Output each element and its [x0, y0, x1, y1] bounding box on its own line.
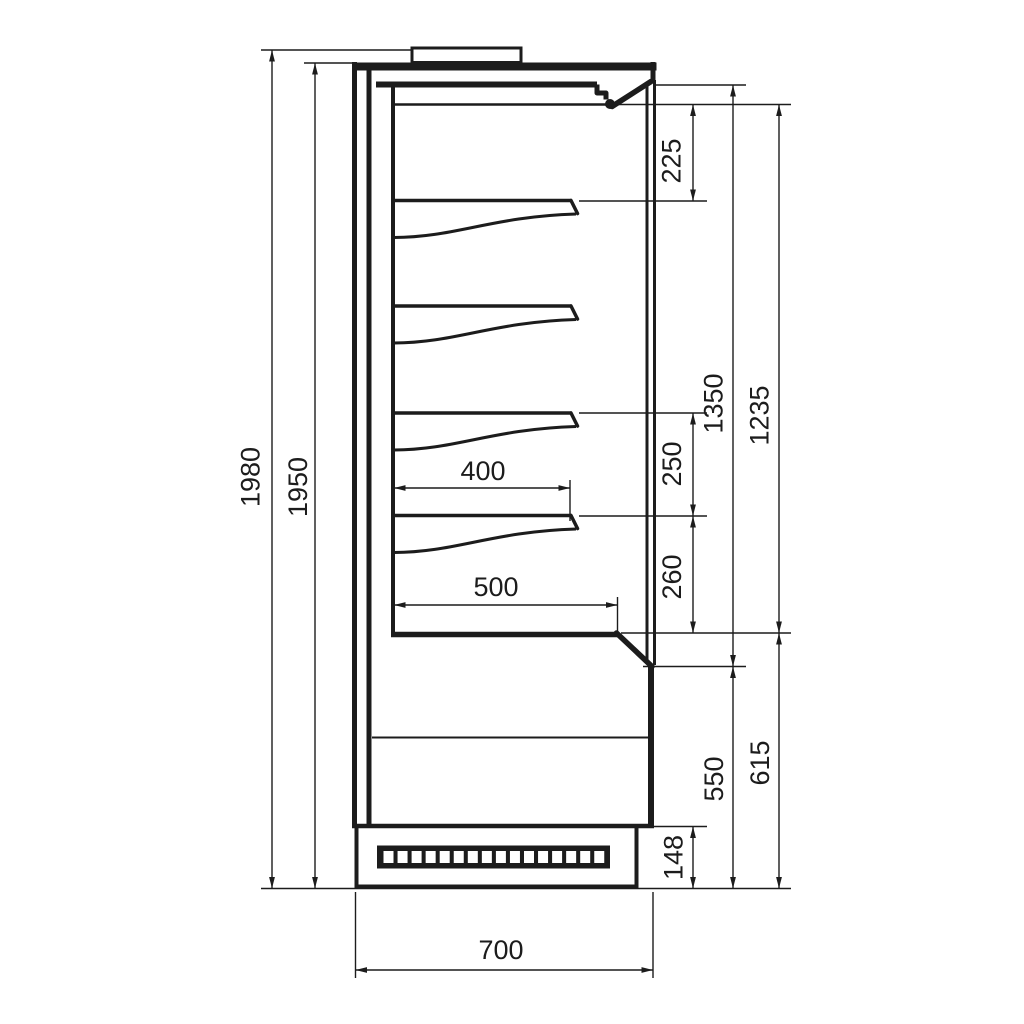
shelf-4-underside-curve — [394, 529, 576, 553]
dim-overall-depth-arrow-right — [642, 967, 654, 973]
dim-opening-height-arrow-bottom — [730, 655, 736, 667]
dim-top-clearance-arrow-bottom — [690, 190, 696, 202]
dim-shelf-pitch-upper-arrow-bottom — [690, 505, 696, 517]
dim-overall-height-arrow-top — [269, 50, 275, 62]
dim-label-shelf-pitch-upper: 250 — [657, 441, 687, 486]
dim-shelf-depth-arrow-left — [394, 485, 406, 491]
shelf-3-underside-curve — [394, 427, 576, 451]
dim-body-height-arrow-top — [312, 63, 318, 75]
dim-deck-depth-arrow-right — [606, 602, 618, 608]
grille-slot — [440, 851, 450, 863]
canopy-front-bevel — [612, 82, 651, 107]
dim-label-shelf-depth: 400 — [460, 456, 505, 486]
grille-slot — [580, 851, 590, 863]
grille-slot — [468, 851, 478, 863]
shelf-1-underside-curve — [394, 214, 576, 238]
shelf-4-front-tick — [571, 516, 578, 529]
dim-top-clearance-arrow-top — [690, 105, 696, 117]
drawing-sheet: 1980 1950 225 250 260 148 1350 550 1235 … — [0, 0, 1024, 1024]
dim-shelf-pitch-lower-arrow-bottom — [690, 622, 696, 634]
dim-label-deck-depth: 500 — [473, 572, 518, 602]
grille-slot — [412, 851, 422, 863]
canopy-profile-step — [597, 85, 606, 100]
dim-label-deck-height: 615 — [745, 740, 775, 785]
shelf-3-front-tick — [571, 413, 578, 426]
grille-slot — [454, 851, 464, 863]
dim-plinth-height-arrow-bottom — [690, 877, 696, 889]
grille-slot — [496, 851, 506, 863]
top-box — [412, 48, 521, 63]
dim-overall-depth-arrow-left — [356, 967, 368, 973]
dim-label-plinth-height: 148 — [659, 835, 689, 880]
dim-shelf-pitch-upper-arrow-top — [690, 413, 696, 425]
dim-shelf-depth-arrow-right — [559, 485, 571, 491]
grille-slot — [482, 851, 492, 863]
shelf-2-front-tick — [571, 306, 578, 319]
dim-opening-height-arrow-top — [730, 85, 736, 97]
grille-slot — [398, 851, 408, 863]
grille-slot — [552, 851, 562, 863]
grille-slot — [384, 851, 394, 863]
dim-label-opening-height: 1350 — [699, 373, 729, 433]
dim-label-overall-height: 1980 — [236, 447, 266, 507]
dim-deck-depth-arrow-left — [394, 602, 406, 608]
dim-label-base-front-height: 550 — [699, 756, 729, 801]
dim-label-top-clearance: 225 — [657, 138, 687, 183]
grille-slot — [524, 851, 534, 863]
dim-shelf-pitch-lower-arrow-top — [690, 516, 696, 528]
grille-slot — [426, 851, 436, 863]
dim-display-height-arrow-bottom — [776, 622, 782, 634]
dim-deck-height-arrow-bottom — [776, 877, 782, 889]
grille-slot — [538, 851, 548, 863]
dim-display-height-arrow-top — [776, 105, 782, 117]
shelf-1-front-tick — [571, 201, 578, 214]
dimension-labels: 1980 1950 225 250 260 148 1350 550 1235 … — [236, 138, 776, 965]
dim-label-body-height: 1950 — [283, 457, 313, 517]
technical-drawing: 1980 1950 225 250 260 148 1350 550 1235 … — [0, 0, 1024, 1024]
dim-base-front-height-arrow-bottom — [730, 877, 736, 889]
dim-overall-height-arrow-bottom — [269, 877, 275, 889]
grille-slot — [566, 851, 576, 863]
grille-slot — [510, 851, 520, 863]
dim-deck-height-arrow-top — [776, 633, 782, 645]
dim-label-display-height: 1235 — [745, 385, 775, 445]
dim-base-front-height-arrow-top — [730, 667, 736, 679]
dimension-lines — [269, 50, 782, 973]
grille-slot — [594, 851, 604, 863]
dim-body-height-arrow-bottom — [312, 877, 318, 889]
dim-label-overall-depth: 700 — [478, 935, 523, 965]
shelf-2-underside-curve — [394, 320, 576, 344]
dim-label-shelf-pitch-lower: 260 — [657, 554, 687, 599]
dim-plinth-height-arrow-top — [690, 827, 696, 839]
